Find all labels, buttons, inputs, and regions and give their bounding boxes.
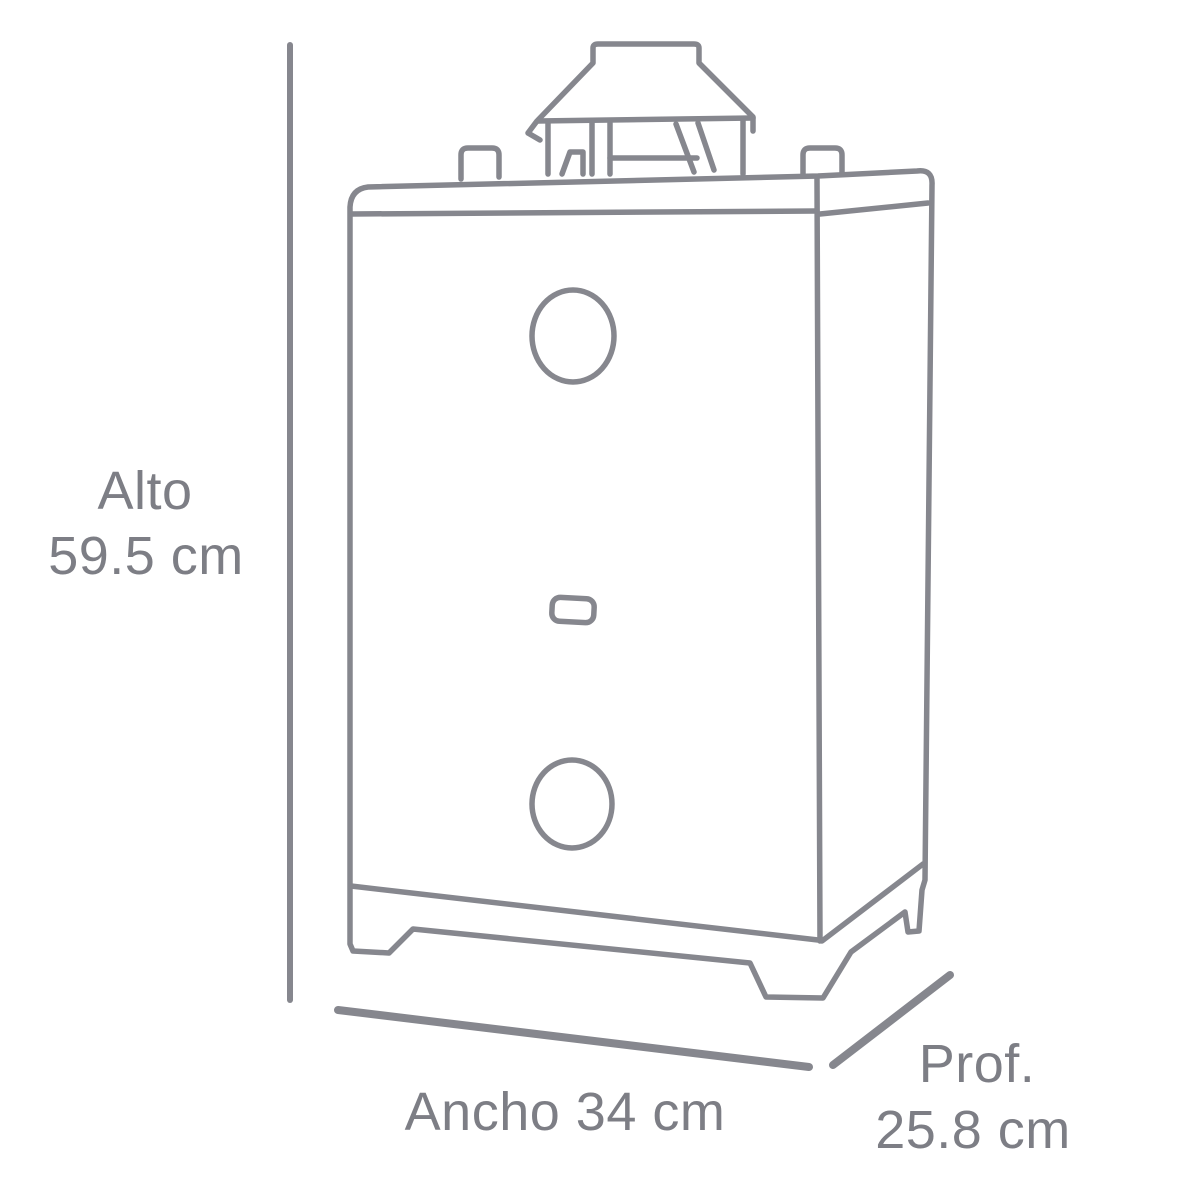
top-band-front bbox=[352, 211, 817, 214]
hood-rim bbox=[538, 118, 753, 121]
front-right-edge bbox=[817, 179, 820, 941]
flue-hood-group bbox=[528, 44, 753, 174]
water-heater-line-art bbox=[0, 0, 1200, 1200]
width-label-line: Ancho 34 cm bbox=[405, 1085, 726, 1139]
lower-knockout-circle bbox=[532, 760, 612, 848]
top-band-side bbox=[820, 203, 928, 214]
top-tab-right bbox=[803, 148, 842, 175]
pilot-window bbox=[551, 597, 594, 623]
dimension-diagram: Alto 59.5 cm Ancho 34 cm Prof. 25.8 cm bbox=[0, 0, 1200, 1200]
heater-body-group bbox=[350, 148, 932, 998]
width-dimension-line bbox=[338, 1010, 809, 1067]
dimension-lines-group bbox=[290, 45, 950, 1067]
depth-label: Prof. bbox=[919, 1037, 1036, 1091]
flue-cap-and-hood bbox=[538, 44, 753, 120]
heater-silhouette bbox=[350, 171, 932, 998]
height-label: Alto bbox=[97, 464, 192, 518]
collar-step bbox=[562, 152, 583, 174]
width-label: Ancho bbox=[405, 1082, 561, 1142]
collar-slant-seam-1 bbox=[676, 124, 694, 172]
height-value: 59.5 cm bbox=[48, 529, 244, 583]
depth-value: 25.8 cm bbox=[875, 1103, 1071, 1157]
hood-rim-flange bbox=[528, 121, 540, 140]
collar-slant-seam-2 bbox=[698, 123, 714, 170]
top-tab-left bbox=[461, 148, 499, 179]
width-value: 34 cm bbox=[576, 1082, 726, 1142]
upper-knockout-circle bbox=[532, 290, 614, 382]
